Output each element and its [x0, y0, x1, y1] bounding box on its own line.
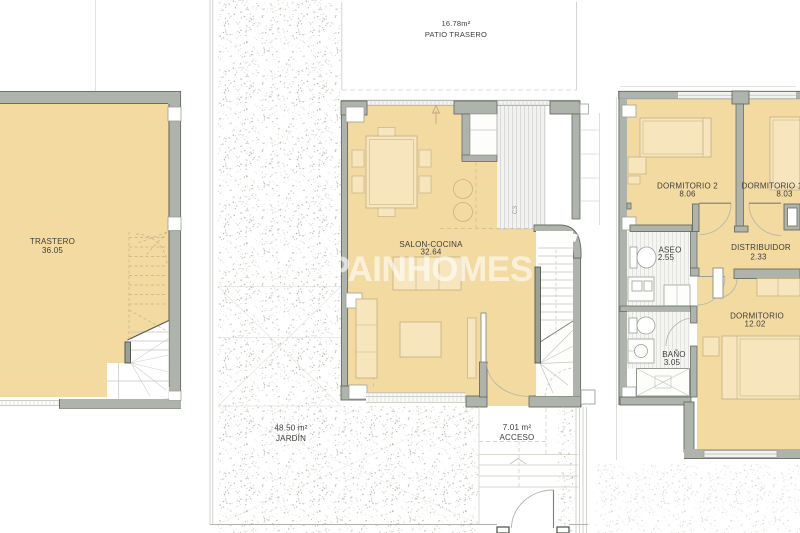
svg-text:12.02: 12.02 [744, 320, 765, 329]
svg-text:2.33: 2.33 [750, 253, 767, 262]
svg-text:C3: C3 [512, 205, 519, 214]
svg-text:8.06: 8.06 [679, 190, 696, 199]
svg-text:7.01 m²: 7.01 m² [503, 423, 532, 432]
svg-text:DISTRIBUIDOR: DISTRIBUIDOR [731, 243, 791, 252]
svg-text:36.05: 36.05 [42, 246, 63, 255]
svg-text:ACCESO: ACCESO [500, 433, 535, 442]
svg-text:PAINHOMES: PAINHOMES [327, 250, 533, 289]
svg-text:16.78m²: 16.78m² [442, 19, 471, 28]
svg-text:8.03: 8.03 [776, 190, 793, 199]
svg-text:2.55: 2.55 [658, 253, 675, 262]
svg-text:JARDÍN: JARDÍN [276, 434, 306, 443]
svg-text:TRASTERO: TRASTERO [30, 237, 75, 246]
svg-text:PATIO TRASERO: PATIO TRASERO [425, 30, 487, 39]
svg-text:48.50 m²: 48.50 m² [274, 424, 307, 433]
svg-text:3.05: 3.05 [664, 358, 681, 367]
